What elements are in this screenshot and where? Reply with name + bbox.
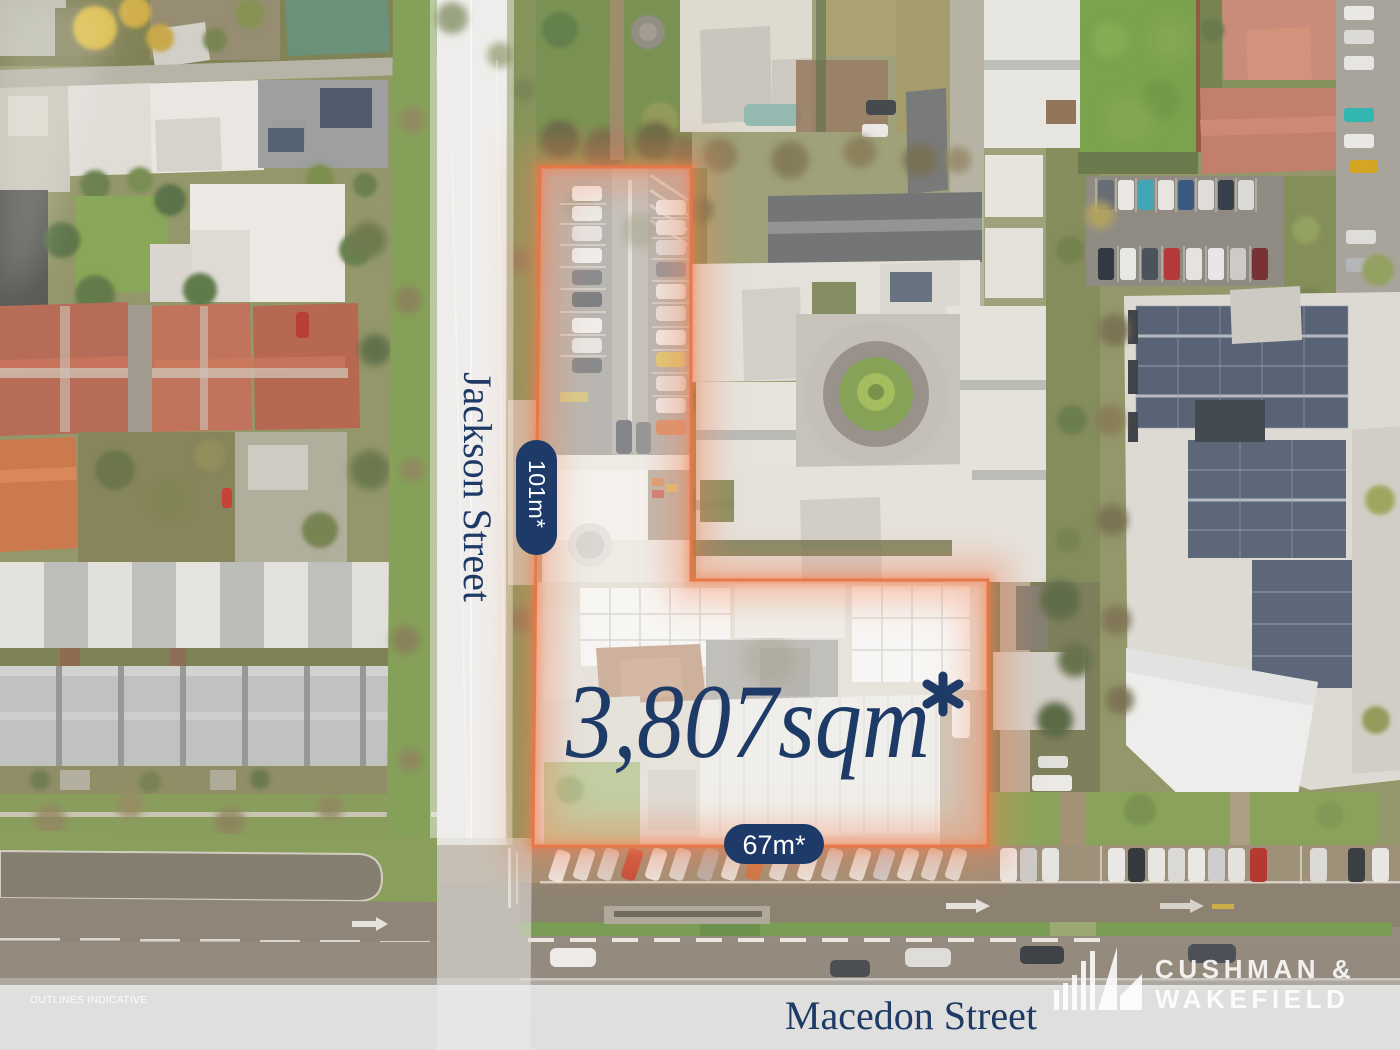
svg-text:101m*: 101m* (524, 460, 550, 528)
svg-text:3,807sqm: 3,807sqm (565, 663, 930, 780)
svg-text:OUTLINES INDICATIVE: OUTLINES INDICATIVE (30, 994, 147, 1006)
svg-text:Jackson Street: Jackson Street (455, 372, 500, 602)
svg-text:67m*: 67m* (742, 830, 806, 860)
svg-text:Macedon Street: Macedon Street (785, 993, 1037, 1038)
svg-text:CUSHMAN &: CUSHMAN & (1155, 954, 1355, 984)
svg-text:WAKEFIELD: WAKEFIELD (1155, 984, 1350, 1014)
